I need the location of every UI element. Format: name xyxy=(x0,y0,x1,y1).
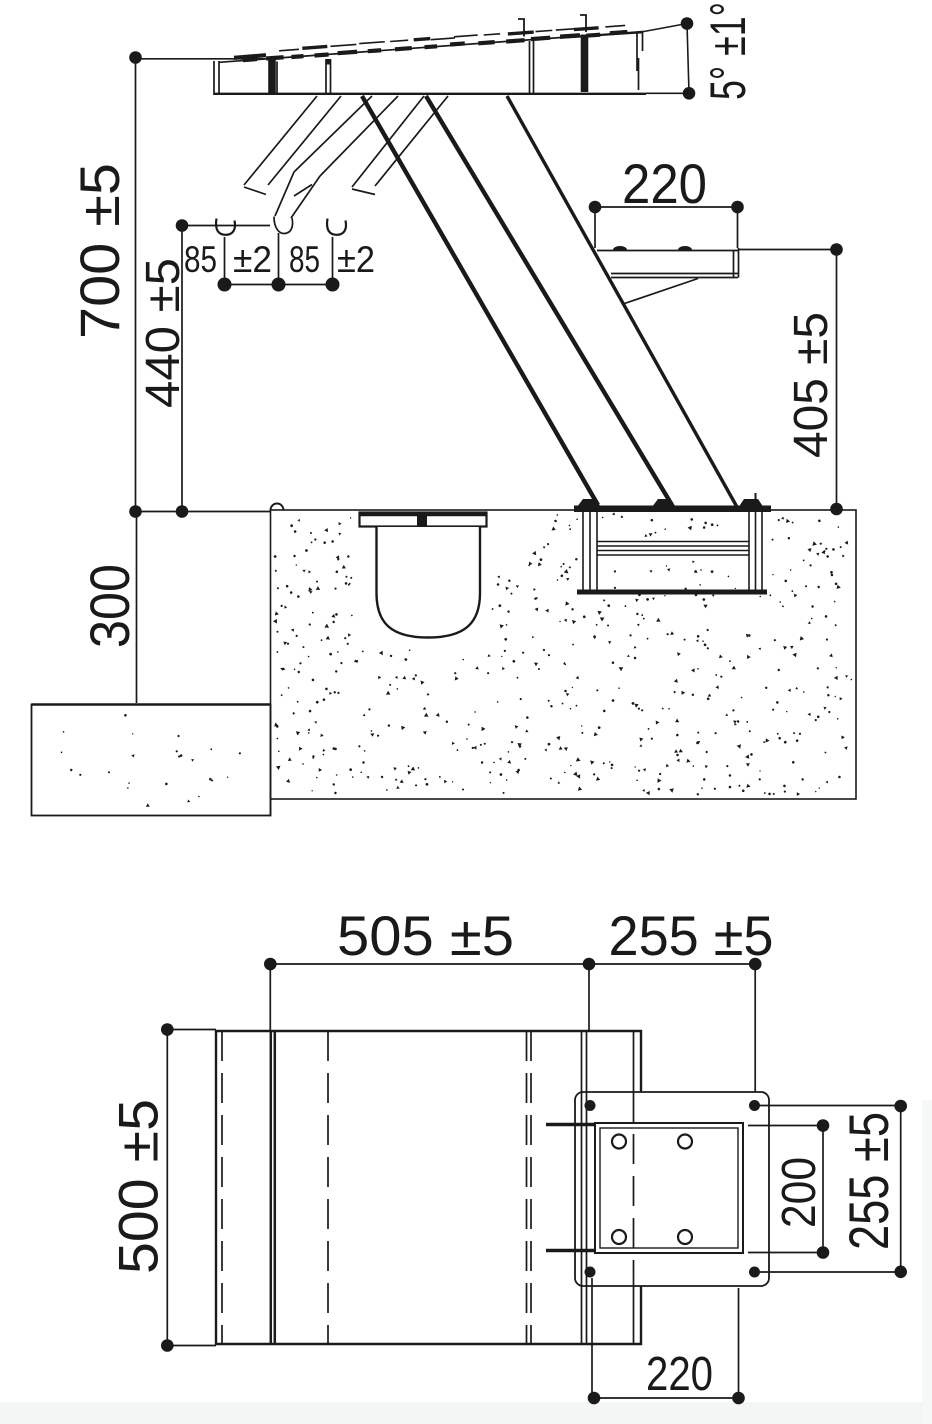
svg-text:220: 220 xyxy=(646,1348,713,1401)
svg-text:500 ±5: 500 ±5 xyxy=(107,1099,170,1274)
svg-text:505 ±5: 505 ±5 xyxy=(337,904,514,967)
svg-text:220: 220 xyxy=(622,152,707,215)
svg-text:255 ±5: 255 ±5 xyxy=(837,1112,900,1250)
svg-text:85: 85 xyxy=(184,239,217,280)
svg-text:85: 85 xyxy=(289,239,320,280)
svg-text:±2: ±2 xyxy=(337,239,375,280)
svg-text:700 ±5: 700 ±5 xyxy=(68,163,131,339)
svg-text:405 ±5: 405 ±5 xyxy=(785,312,838,458)
svg-text:255 ±5: 255 ±5 xyxy=(609,904,774,967)
svg-text:5° ±1°: 5° ±1° xyxy=(700,2,756,100)
svg-text:±2: ±2 xyxy=(233,239,272,280)
svg-text:440 ±5: 440 ±5 xyxy=(137,258,190,408)
svg-text:200: 200 xyxy=(773,1157,826,1228)
svg-text:300: 300 xyxy=(78,564,141,648)
